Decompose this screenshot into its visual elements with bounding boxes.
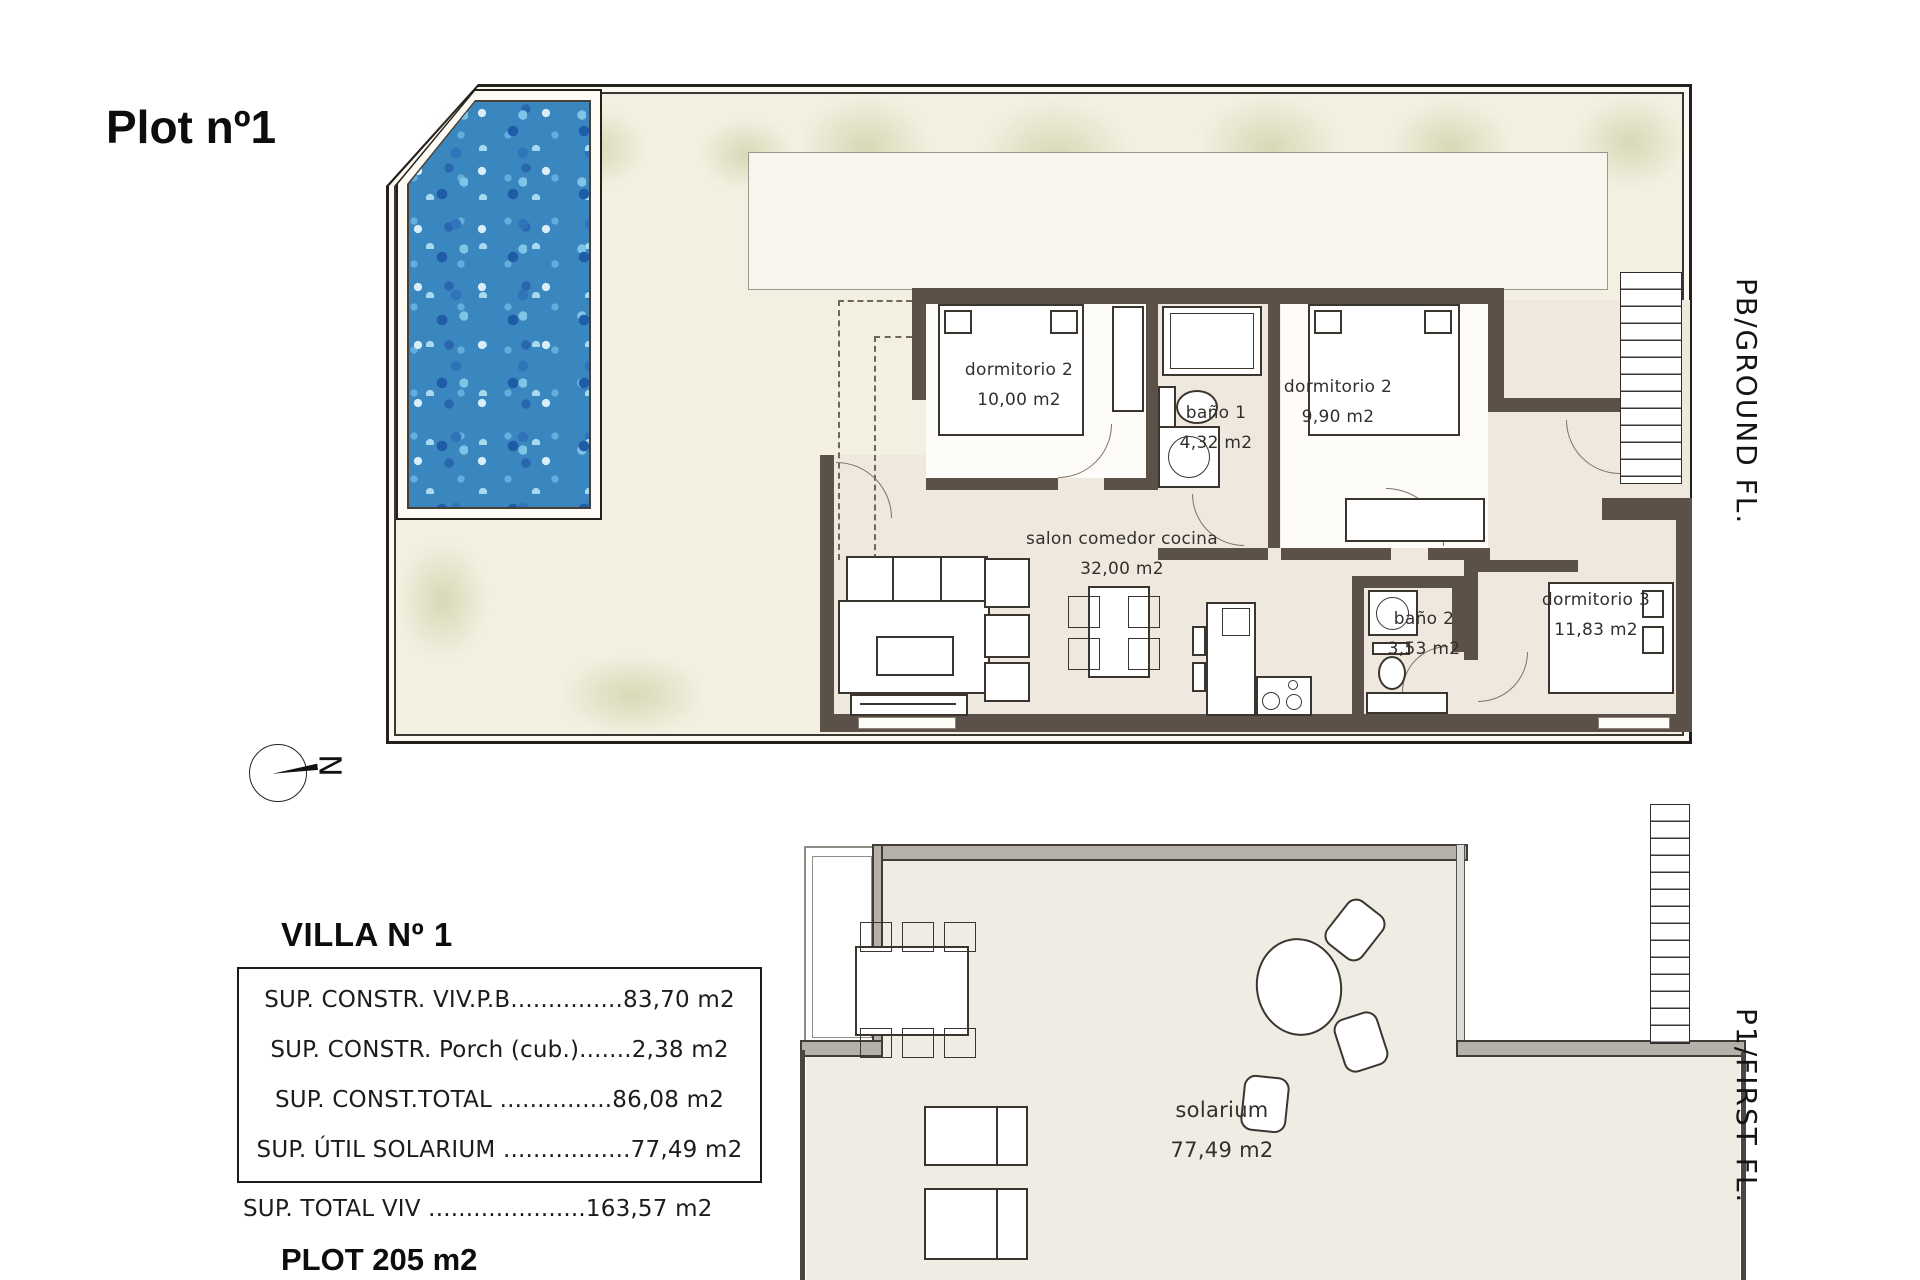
room-name: dormitorio 2 bbox=[1284, 377, 1392, 397]
summary-plot-row: PLOT 205 m2 bbox=[281, 1242, 477, 1278]
room-label-dormitorio2-left: dormitorio 2 10,00 m2 bbox=[965, 355, 1073, 415]
room-label-dormitorio2-right: dormitorio 2 9,90 m2 bbox=[1284, 372, 1392, 432]
room-label-dormitorio3: dormitorio 3 11,83 m2 bbox=[1542, 585, 1650, 645]
room-label-bano1: baño 1 4,32 m2 bbox=[1180, 398, 1253, 458]
room-area: 32,00 m2 bbox=[1080, 559, 1164, 579]
room-label-solarium: solarium 77,49 m2 bbox=[1170, 1090, 1273, 1170]
summary-total-row: SUP. TOTAL VIV .....................163,… bbox=[243, 1196, 713, 1222]
room-name: solarium bbox=[1175, 1098, 1268, 1122]
room-name: salon comedor cocina bbox=[1026, 529, 1218, 549]
room-area: 10,00 m2 bbox=[977, 390, 1061, 410]
room-area: 9,90 m2 bbox=[1302, 407, 1375, 427]
summary-box: SUP. CONSTR. VIV.P.B...............83,70… bbox=[237, 967, 762, 1183]
room-name: dormitorio 3 bbox=[1542, 590, 1650, 610]
room-label-salon: salon comedor cocina 32,00 m2 bbox=[1026, 524, 1218, 584]
room-area: 4,32 m2 bbox=[1180, 433, 1253, 453]
summary-title: VILLA Nº 1 bbox=[281, 916, 453, 954]
room-area: 3,53 m2 bbox=[1388, 639, 1461, 659]
room-name: baño 1 bbox=[1186, 403, 1246, 423]
summary-row: SUP. CONSTR. VIV.P.B...............83,70… bbox=[264, 987, 735, 1013]
summary-row: SUP. CONST.TOTAL ...............86,08 m2 bbox=[275, 1087, 724, 1113]
floorplan-sheet: Plot nº1 bbox=[0, 0, 1920, 1280]
room-label-bano2: baño 2 3,53 m2 bbox=[1388, 604, 1461, 664]
room-name: dormitorio 2 bbox=[965, 360, 1073, 380]
room-area: 77,49 m2 bbox=[1170, 1138, 1273, 1162]
summary-row: SUP. CONSTR. Porch (cub.).......2,38 m2 bbox=[270, 1037, 728, 1063]
room-name: baño 2 bbox=[1394, 609, 1454, 629]
room-area: 11,83 m2 bbox=[1554, 620, 1638, 640]
summary-row: SUP. ÚTIL SOLARIUM .................77,4… bbox=[257, 1137, 743, 1163]
